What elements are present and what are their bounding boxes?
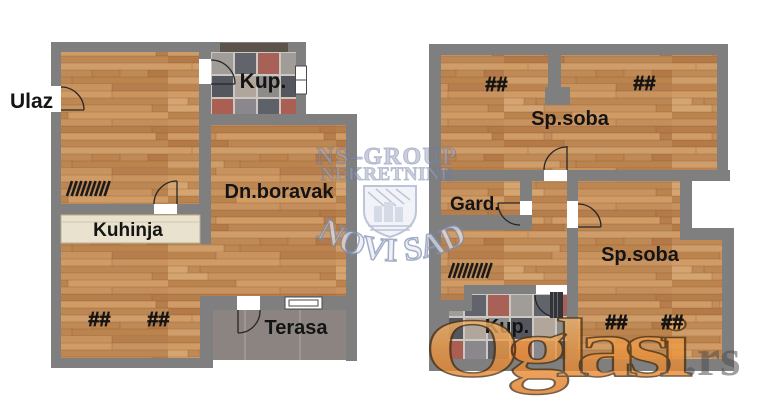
svg-text:Dn.boravak: Dn.boravak <box>225 181 335 203</box>
svg-text:##: ## <box>605 312 628 334</box>
svg-text:Sp.soba: Sp.soba <box>531 108 610 130</box>
svg-text:Sp.soba: Sp.soba <box>601 244 680 266</box>
svg-text:##: ## <box>147 309 170 331</box>
svg-text:Kup.: Kup. <box>240 70 287 93</box>
svg-text:Terasa: Terasa <box>264 317 328 339</box>
svg-text:##: ## <box>485 74 508 96</box>
svg-text:Oglasi: Oglasi <box>424 301 691 394</box>
svg-text:NEKRETNINE: NEKRETNINE <box>321 164 454 185</box>
svg-text:##: ## <box>88 309 111 331</box>
svg-text:.rs: .rs <box>684 330 740 387</box>
svg-text:Gard.: Gard. <box>450 194 500 215</box>
svg-text:##: ## <box>633 73 656 95</box>
svg-text:Ulaz: Ulaz <box>10 90 53 113</box>
svg-text:##: ## <box>661 312 684 334</box>
svg-text:Kuhinja: Kuhinja <box>93 220 163 241</box>
